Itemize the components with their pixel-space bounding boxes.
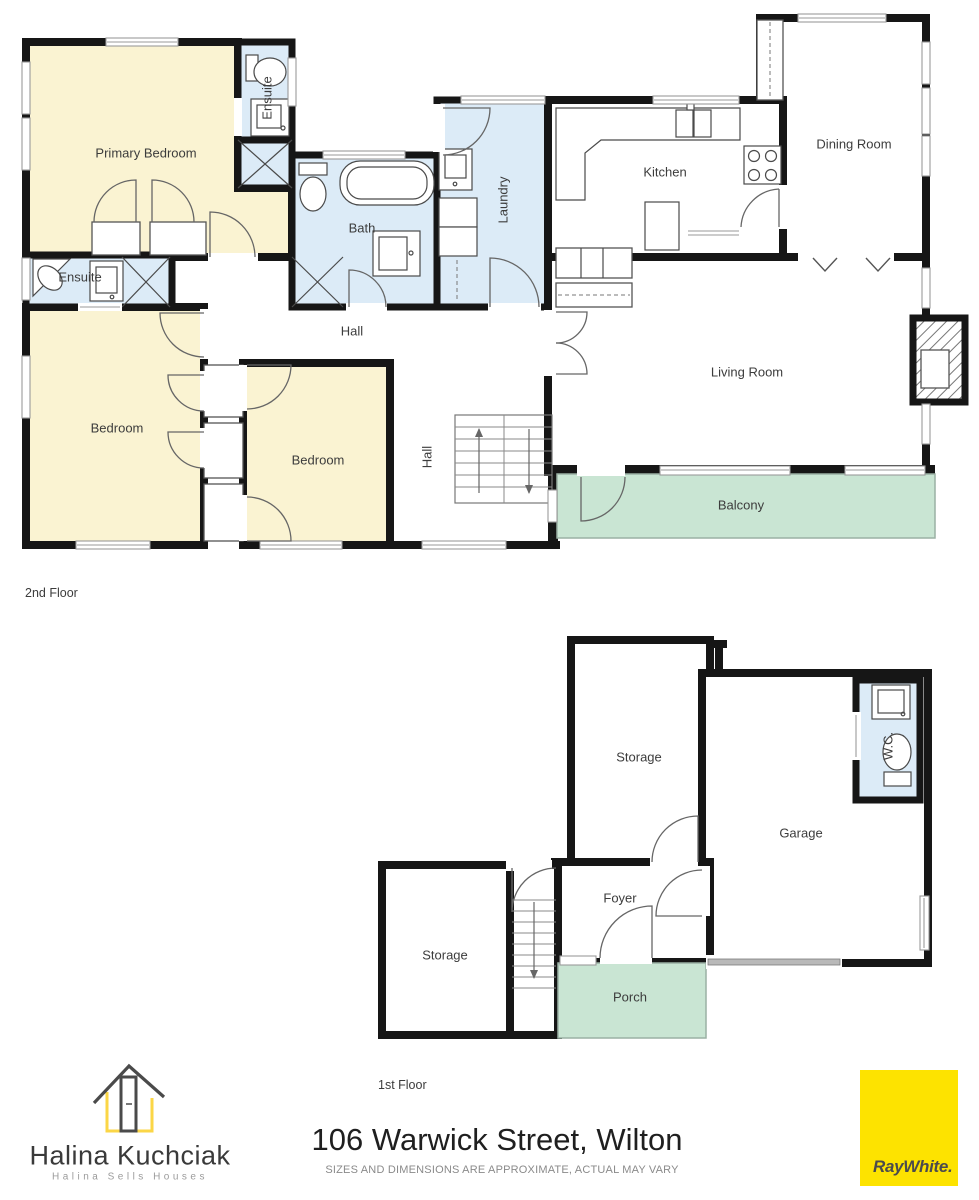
first-floor-plan bbox=[382, 640, 929, 1038]
staircase-upper bbox=[455, 415, 552, 503]
room-label-bedroom: Bedroom bbox=[91, 421, 144, 436]
second-floor-plan bbox=[22, 14, 965, 549]
room-label-dining-room: Dining Room bbox=[816, 137, 891, 152]
toilet-icon bbox=[300, 177, 326, 211]
room-label-kitchen: Kitchen bbox=[643, 165, 686, 180]
agent-name: Halina Kuchciak bbox=[29, 1141, 230, 1172]
raywhite-logo-text: RayWhite. bbox=[873, 1157, 952, 1177]
room-label-hall: Hall bbox=[420, 446, 435, 468]
room-label-bath: Bath bbox=[349, 221, 376, 236]
room-label-ensuite: Ensuite bbox=[58, 270, 101, 285]
room-label-storage: Storage bbox=[616, 750, 662, 765]
room-label-balcony: Balcony bbox=[718, 498, 764, 513]
room-label-foyer: Foyer bbox=[603, 891, 636, 906]
room-label-w-c-: W.C. bbox=[881, 732, 896, 760]
agent-tagline: Halina Sells Houses bbox=[52, 1172, 208, 1183]
room-label-bedroom: Bedroom bbox=[292, 453, 345, 468]
room-label-laundry: Laundry bbox=[496, 177, 511, 224]
floor-label-2nd: 2nd Floor bbox=[25, 586, 78, 600]
floor-label-1st: 1st Floor bbox=[378, 1078, 427, 1092]
raywhite-logo: RayWhite. bbox=[860, 1070, 958, 1186]
room-label-porch: Porch bbox=[613, 990, 647, 1005]
room-label-ensuite: Ensuite bbox=[260, 76, 275, 119]
size-disclaimer: SIZES AND DIMENSIONS ARE APPROXIMATE, AC… bbox=[325, 1164, 678, 1176]
room-label-garage: Garage bbox=[779, 826, 822, 841]
property-address: 106 Warwick Street, Wilton bbox=[312, 1122, 683, 1158]
garage-door bbox=[708, 959, 840, 965]
room-label-living-room: Living Room bbox=[711, 365, 783, 380]
agency-logo-house-icon bbox=[94, 1066, 164, 1131]
room-label-primary-bedroom: Primary Bedroom bbox=[95, 146, 196, 161]
room-label-storage: Storage bbox=[422, 948, 468, 963]
floor-plan-drawing bbox=[0, 0, 979, 1200]
room-label-hall: Hall bbox=[341, 324, 363, 339]
floorplan-page: 2nd Floor 1st Floor Primary BedroomEnsui… bbox=[0, 0, 979, 1200]
